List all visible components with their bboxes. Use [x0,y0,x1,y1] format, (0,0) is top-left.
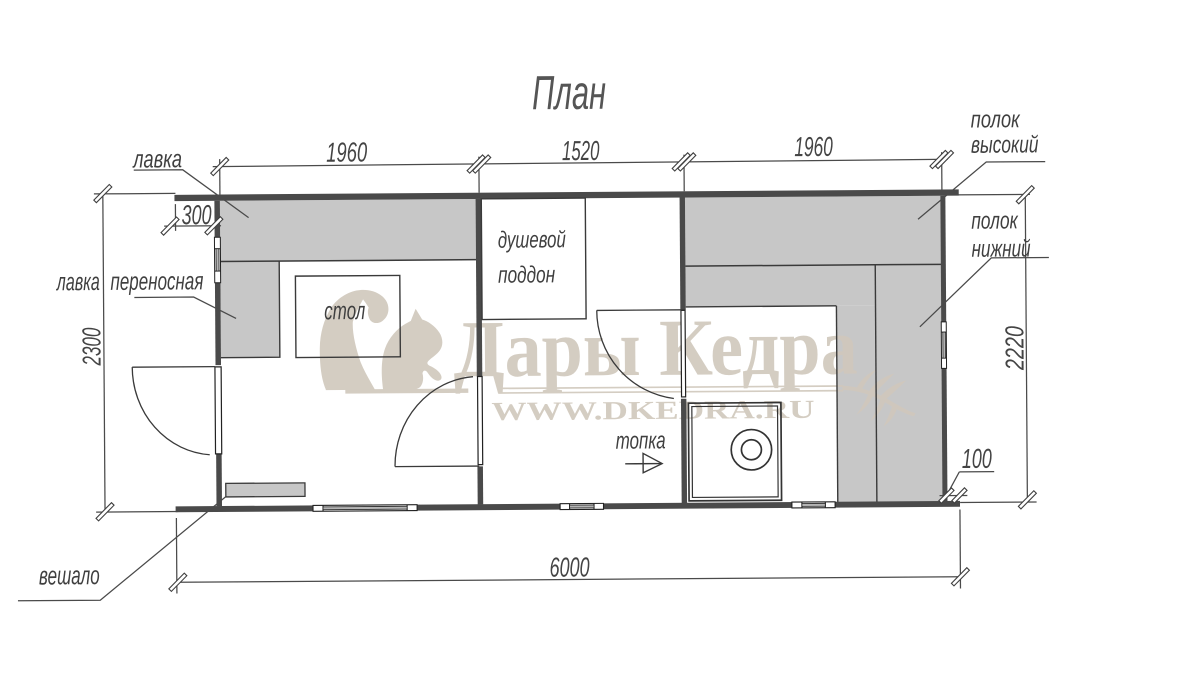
svg-text:100: 100 [962,443,993,474]
svg-text:высокий: высокий [971,131,1039,158]
svg-text:лавка: лавка [55,268,100,296]
svg-text:2300: 2300 [76,327,106,366]
svg-text:6000: 6000 [549,551,590,582]
svg-text:стол: стол [324,297,365,325]
svg-text:WWW.DKEDRA.RU: WWW.DKEDRA.RU [491,395,814,426]
svg-text:переносная: переносная [110,267,203,296]
svg-text:300: 300 [181,199,212,230]
svg-text:Дары Кедра: Дары Кедра [453,302,858,395]
svg-text:поддон: поддон [498,261,555,287]
svg-text:1960: 1960 [794,131,833,162]
svg-text:1960: 1960 [326,136,368,167]
svg-text:1520: 1520 [562,135,600,166]
svg-text:полок: полок [971,106,1021,133]
svg-text:топка: топка [616,427,666,454]
svg-text:вешало: вешало [39,560,100,590]
svg-text:душевой: душевой [498,226,566,252]
svg-text:2220: 2220 [999,325,1029,370]
svg-text:нижний: нижний [971,235,1030,262]
svg-text:полок: полок [971,207,1019,234]
svg-text:План: План [532,67,606,121]
